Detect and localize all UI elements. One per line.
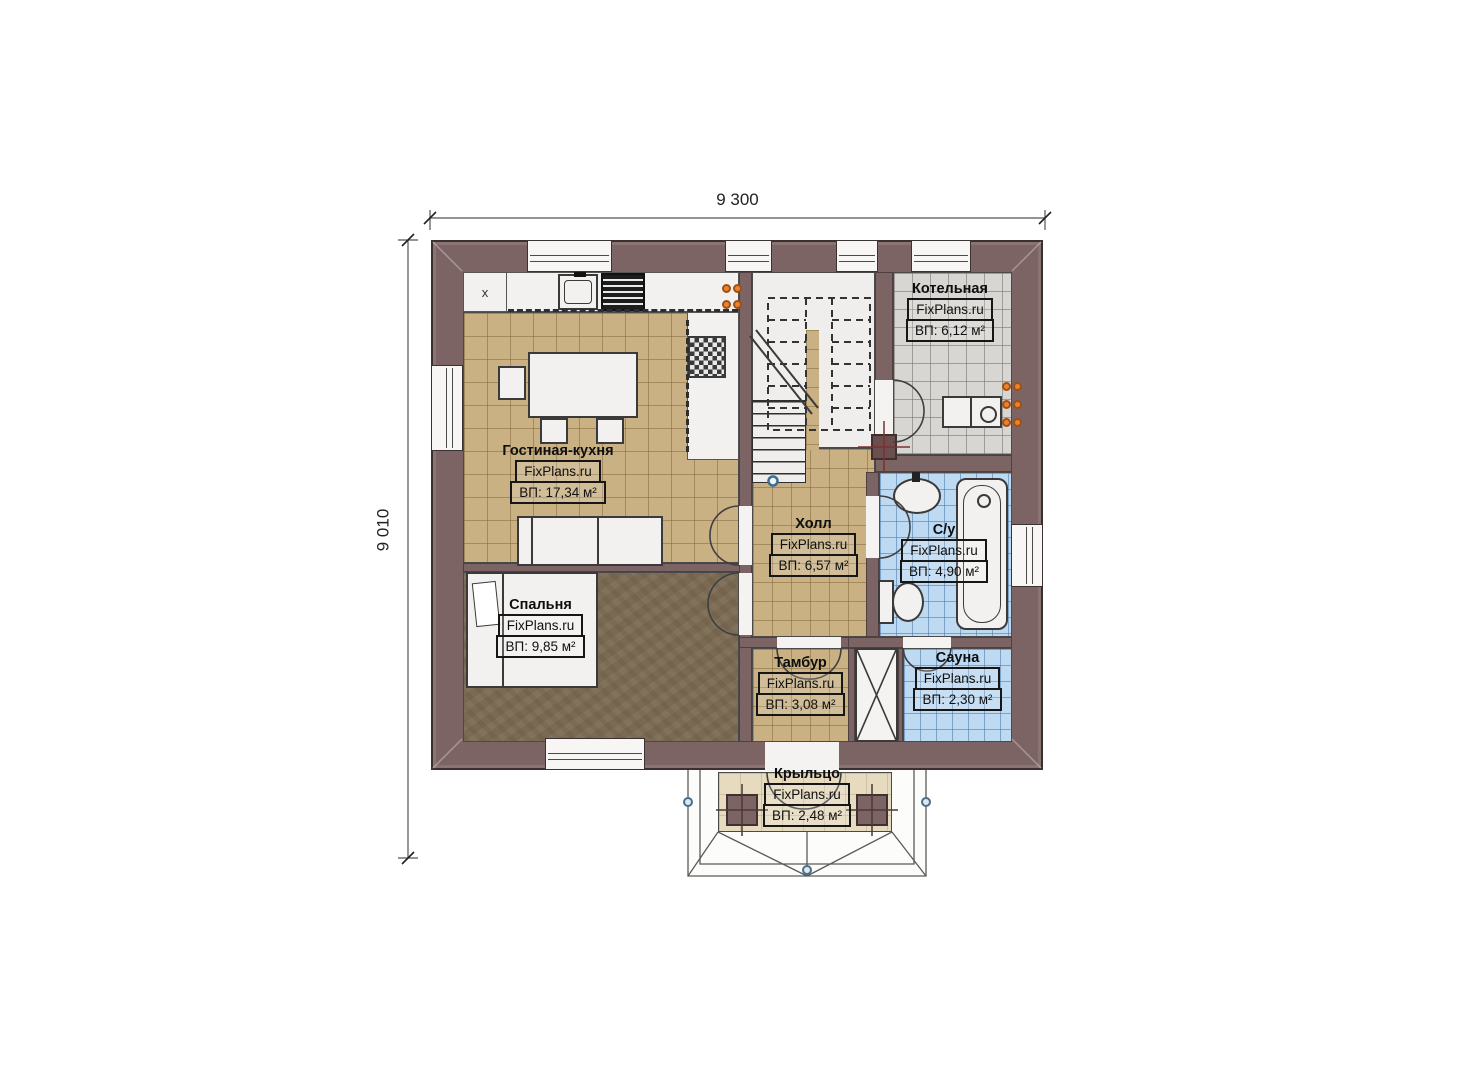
room-label-living: Гостиная-кухня FixPlans.ru ВП: 17,34 м² xyxy=(468,443,648,504)
radiator-boiler-2 xyxy=(1002,400,1022,409)
bathtub-drain xyxy=(977,494,991,508)
dining-table xyxy=(528,352,638,418)
door-opening-living xyxy=(739,506,752,565)
sofa-cushion-divider xyxy=(597,518,599,564)
room-label-bathroom: С/у FixPlans.ru ВП: 4,90 м² xyxy=(884,522,1004,583)
wardrobe xyxy=(855,648,898,742)
kitchen-sink xyxy=(558,274,598,310)
dimension-height-label: 9 010 xyxy=(373,509,393,552)
window-stairs-2 xyxy=(836,240,878,272)
room-brand: FixPlans.ru xyxy=(498,614,584,637)
kitchen-sink-basin xyxy=(564,280,592,304)
kitchen-stove xyxy=(601,273,645,311)
room-name: Спальня xyxy=(509,597,572,614)
room-name: Сауна xyxy=(936,650,980,667)
window-living xyxy=(431,365,463,451)
room-name: Тамбур xyxy=(774,655,827,672)
kitchen-cabinet-column xyxy=(687,312,739,460)
door-opening-boiler xyxy=(875,380,893,442)
toilet-bowl xyxy=(892,582,924,622)
room-brand: FixPlans.ru xyxy=(771,533,857,556)
chair-left xyxy=(498,366,526,400)
window-kitchen xyxy=(527,240,612,272)
cabinet-dash-line xyxy=(508,309,738,312)
boiler-dial xyxy=(980,406,997,423)
room-name: С/у xyxy=(933,522,956,539)
column-marker xyxy=(871,434,897,460)
room-area: ВП: 6,57 м² xyxy=(769,554,857,577)
sofa-armrest xyxy=(531,518,533,564)
dimension-width-label: 9 300 xyxy=(430,190,1045,210)
sofa xyxy=(517,516,663,566)
kitchen-faucet-icon xyxy=(574,272,586,277)
floor-stair-strip xyxy=(806,330,819,450)
chair-bottom-1 xyxy=(540,418,568,444)
bathroom-sink-tap xyxy=(912,472,920,482)
room-label-tambour: Тамбур FixPlans.ru ВП: 3,08 м² xyxy=(748,655,853,716)
room-name: Крыльцо xyxy=(774,766,840,783)
room-area: ВП: 9,85 м² xyxy=(496,635,584,658)
room-label-bedroom: Спальня FixPlans.ru ВП: 9,85 м² xyxy=(468,597,613,658)
door-opening-bedroom xyxy=(739,573,752,635)
room-label-sauna: Сауна FixPlans.ru ВП: 2,30 м² xyxy=(903,650,1012,711)
room-brand: FixPlans.ru xyxy=(758,672,844,695)
radiator-boiler-3 xyxy=(1002,418,1022,427)
floor-plan-canvas: 9 300 9 010 x xyxy=(0,0,1473,1080)
room-label-porch: Крыльцо FixPlans.ru ВП: 2,48 м² xyxy=(737,766,877,827)
room-brand: FixPlans.ru xyxy=(907,298,993,321)
cabinet-x-label: x xyxy=(482,285,489,300)
window-bedroom xyxy=(545,738,645,770)
radiator-kitchen-2 xyxy=(722,300,742,309)
door-opening-tambour xyxy=(777,637,841,648)
boiler-unit xyxy=(942,396,1002,428)
room-name: Котельная xyxy=(912,281,988,298)
room-area: ВП: 4,90 м² xyxy=(900,560,988,583)
room-brand: FixPlans.ru xyxy=(515,460,601,483)
radiator-kitchen-1 xyxy=(722,284,742,293)
window-stairs-1 xyxy=(725,240,772,272)
room-label-hall: Холл FixPlans.ru ВП: 6,57 м² xyxy=(752,516,875,577)
room-brand: FixPlans.ru xyxy=(764,783,850,806)
dimension-left-line xyxy=(398,234,418,864)
radiator-boiler-1 xyxy=(1002,382,1022,391)
bathroom-sink xyxy=(893,478,941,514)
room-area: ВП: 17,34 м² xyxy=(510,481,606,504)
window-bathroom xyxy=(1011,524,1043,587)
room-area: ВП: 2,48 м² xyxy=(763,804,851,827)
window-boiler xyxy=(911,240,971,272)
room-brand: FixPlans.ru xyxy=(915,667,1001,690)
room-area: ВП: 2,30 м² xyxy=(913,688,1001,711)
cabinet-dash-line-2 xyxy=(686,320,689,452)
boiler-divider xyxy=(970,398,972,426)
door-opening-sauna xyxy=(903,637,951,648)
kitchen-oven xyxy=(688,336,726,378)
room-area: ВП: 6,12 м² xyxy=(906,319,994,342)
room-label-boiler: Котельная FixPlans.ru ВП: 6,12 м² xyxy=(888,281,1012,342)
room-brand: FixPlans.ru xyxy=(901,539,987,562)
room-name: Гостиная-кухня xyxy=(502,443,613,460)
room-area: ВП: 3,08 м² xyxy=(756,693,844,716)
room-name: Холл xyxy=(795,516,831,533)
dimension-top-line xyxy=(424,210,1051,230)
kitchen-cabinet-x: x xyxy=(463,272,507,312)
chair-bottom-2 xyxy=(596,418,624,444)
stairs-lower-flight xyxy=(752,400,806,483)
